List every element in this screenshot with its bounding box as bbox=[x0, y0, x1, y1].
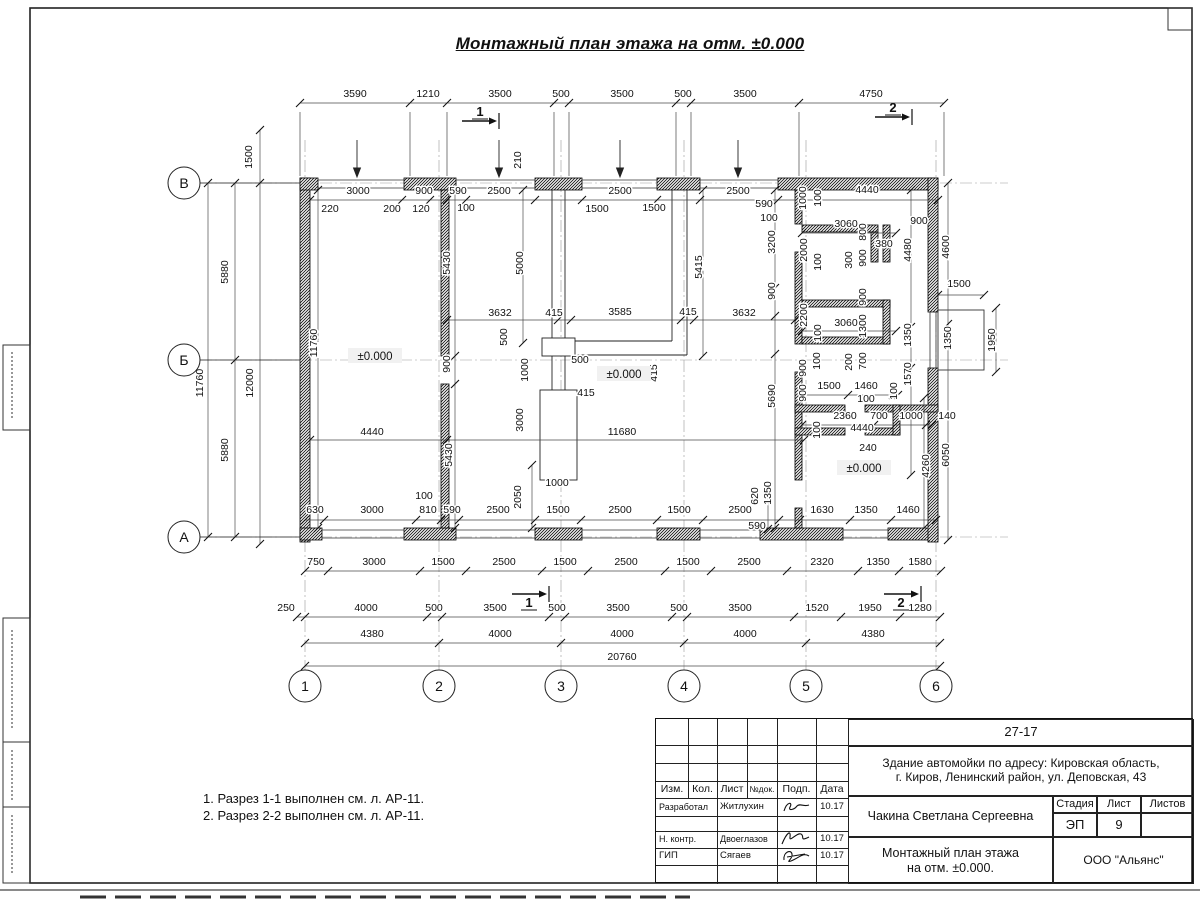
dim-label: 1630 bbox=[810, 504, 834, 516]
dim-label: 100 bbox=[457, 202, 475, 214]
dim-label: 620 bbox=[749, 487, 761, 505]
notes-block: 1. Разрез 1-1 выполнен см. л. АР-11. 2. … bbox=[203, 790, 424, 824]
dim-label: 900 bbox=[415, 185, 433, 197]
leader-arrows bbox=[354, 140, 742, 177]
dim-label: 3200 bbox=[766, 230, 778, 254]
dim-label: 2500 bbox=[486, 504, 510, 516]
dim-label: 900 bbox=[797, 359, 809, 377]
dim-label: 590 bbox=[755, 198, 773, 210]
dim-label: 4380 bbox=[861, 628, 885, 640]
section-number: 2 bbox=[897, 595, 904, 610]
dim-label: 4380 bbox=[360, 628, 384, 640]
dim-label: 810 bbox=[419, 504, 437, 516]
tb-doc-title-line2: на отм. ±0.000. bbox=[907, 861, 994, 875]
dim-label: 3500 bbox=[488, 88, 512, 100]
dim-label: 1350 bbox=[854, 504, 878, 516]
level-mark: ±0.000 bbox=[837, 460, 891, 475]
dim-label: 2200 bbox=[798, 303, 810, 327]
dimension-labels: 3590121035005003500500350047501500210300… bbox=[194, 88, 998, 663]
dim-label: 1950 bbox=[986, 328, 998, 352]
tb-sign-gip bbox=[777, 845, 816, 866]
dim-label: 630 bbox=[306, 504, 324, 516]
dim-label: 2500 bbox=[614, 556, 638, 568]
dim-label: 11760 bbox=[194, 369, 206, 398]
dim-label: 2320 bbox=[810, 556, 834, 568]
dim-label: 500 bbox=[425, 602, 443, 614]
dim-label: 2050 bbox=[512, 485, 524, 509]
dim-label: 100 bbox=[811, 352, 823, 370]
dim-label: 3500 bbox=[606, 602, 630, 614]
dim-label: 900 bbox=[857, 249, 869, 267]
tb-name-ncontrol: Двоеглазов bbox=[717, 831, 777, 848]
title-block: Изм. Кол. Лист №док. Подп. Дата Разработ… bbox=[655, 718, 1193, 883]
dim-label: 5430 bbox=[443, 443, 455, 467]
dim-label: 100 bbox=[888, 382, 900, 400]
dim-label: 1000 bbox=[797, 186, 809, 210]
axis-col-label: 6 bbox=[932, 678, 940, 694]
dim-label: 11760 bbox=[308, 329, 320, 358]
dim-label: 6050 bbox=[940, 443, 952, 467]
tb-name-developer: Житлухин bbox=[717, 798, 777, 816]
dim-label: 1500 bbox=[947, 278, 971, 290]
dim-label: 1580 bbox=[908, 556, 932, 568]
dim-label: 200 bbox=[383, 203, 401, 215]
dim-label: 140 bbox=[938, 410, 956, 422]
dim-label: 1570 bbox=[902, 362, 914, 386]
dim-label: 4440 bbox=[360, 426, 384, 438]
dim-label: 200 bbox=[843, 353, 855, 371]
tb-role-gip: ГИП bbox=[656, 848, 717, 865]
dim-label: 1500 bbox=[667, 504, 691, 516]
dim-label: 100 bbox=[812, 253, 824, 271]
dim-label: 4000 bbox=[610, 628, 634, 640]
dim-label: 4000 bbox=[488, 628, 512, 640]
dim-label: 4260 bbox=[920, 454, 932, 478]
tb-sheet-number: 9 bbox=[1097, 813, 1141, 837]
tb-client: Чакина Светлана Сергеевна bbox=[848, 796, 1053, 837]
axis-col-label: 3 bbox=[557, 678, 565, 694]
dim-label: 1300 bbox=[857, 314, 869, 338]
section-number: 1 bbox=[525, 595, 532, 610]
tb-col-podp: Подп. bbox=[777, 781, 816, 798]
tb-sign-developer bbox=[777, 798, 816, 816]
dim-label: 500 bbox=[552, 88, 570, 100]
dim-label: 590 bbox=[449, 185, 467, 197]
dim-label: 1500 bbox=[431, 556, 455, 568]
dim-label: 3000 bbox=[514, 408, 526, 432]
dim-label: 1500 bbox=[817, 380, 841, 392]
dim-label: 2500 bbox=[737, 556, 761, 568]
dim-label: 1280 bbox=[908, 602, 932, 614]
svg-text:±0.000: ±0.000 bbox=[606, 369, 641, 381]
dim-label: 2500 bbox=[492, 556, 516, 568]
dim-label: 4600 bbox=[940, 235, 952, 259]
dim-label: 900 bbox=[797, 384, 809, 402]
tb-col-kol: Кол. bbox=[688, 781, 717, 798]
dim-label: 5690 bbox=[766, 384, 778, 408]
tb-object: Здание автомойки по адресу: Кировская об… bbox=[848, 746, 1194, 796]
tb-col-list: Лист bbox=[717, 781, 747, 798]
dim-label: 3000 bbox=[346, 185, 370, 197]
margin-stamp-boxes bbox=[3, 345, 30, 883]
dim-label: 1350 bbox=[866, 556, 890, 568]
dim-label: 4440 bbox=[855, 184, 879, 196]
dim-label: 20760 bbox=[607, 651, 636, 663]
dim-label: 3500 bbox=[728, 602, 752, 614]
dim-label: 415 bbox=[577, 387, 595, 399]
axis-col-label: 1 bbox=[301, 678, 309, 694]
dim-label: 500 bbox=[674, 88, 692, 100]
svg-text:±0.000: ±0.000 bbox=[846, 463, 881, 475]
dim-label: 100 bbox=[811, 421, 823, 439]
dim-label: 2500 bbox=[608, 504, 632, 516]
dim-label: 300 bbox=[843, 251, 855, 269]
dim-label: 5880 bbox=[219, 260, 231, 284]
dim-label: 100 bbox=[415, 490, 433, 502]
dim-label: 415 bbox=[545, 307, 563, 319]
dim-label: 2360 bbox=[833, 410, 857, 422]
tb-sheet-label: Лист bbox=[1097, 796, 1141, 813]
dim-label: 100 bbox=[760, 212, 778, 224]
tb-doc-title: Монтажный план этажа на отм. ±0.000. bbox=[848, 837, 1053, 884]
dim-label: 1950 bbox=[858, 602, 882, 614]
level-mark: ±0.000 bbox=[348, 348, 402, 363]
tb-role-ncontrol: Н. контр. bbox=[656, 831, 717, 848]
corner-stamp-box bbox=[1168, 8, 1192, 30]
tb-stage-value: ЭП bbox=[1053, 813, 1097, 837]
tb-stage-label: Стадия bbox=[1053, 796, 1097, 813]
note-line: 1. Разрез 1-1 выполнен см. л. АР-11. bbox=[203, 790, 424, 807]
dim-label: 3500 bbox=[610, 88, 634, 100]
dim-label: 3632 bbox=[488, 307, 512, 319]
tb-doc-title-line1: Монтажный план этажа bbox=[882, 846, 1019, 860]
tb-col-izm: Изм. bbox=[656, 781, 688, 798]
dim-label: 4480 bbox=[902, 238, 914, 262]
dim-label: 1000 bbox=[545, 477, 569, 489]
dim-label: 1500 bbox=[585, 203, 609, 215]
dim-label: 4440 bbox=[850, 422, 874, 434]
svg-text:±0.000: ±0.000 bbox=[357, 351, 392, 363]
dim-label: 1350 bbox=[902, 323, 914, 347]
axis-row-label: В bbox=[179, 175, 188, 191]
dim-label: 120 bbox=[412, 203, 430, 215]
tb-col-ndok: №док. bbox=[747, 781, 777, 798]
dim-label: 900 bbox=[766, 282, 778, 300]
dim-label: 1210 bbox=[416, 88, 440, 100]
signature bbox=[779, 846, 815, 866]
tb-organization: ООО "Альянс" bbox=[1053, 837, 1194, 884]
dim-label: 3500 bbox=[733, 88, 757, 100]
tb-name-gip: Сягаев bbox=[717, 848, 777, 865]
dim-label: 3500 bbox=[483, 602, 507, 614]
dim-label: 2500 bbox=[726, 185, 750, 197]
dim-label: 1500 bbox=[676, 556, 700, 568]
axis-col-label: 4 bbox=[680, 678, 688, 694]
witness-lines bbox=[300, 112, 944, 176]
dim-label: 1500 bbox=[243, 145, 255, 169]
tb-date-gip: 10.17 bbox=[816, 848, 848, 865]
dim-label: 500 bbox=[571, 354, 589, 366]
dim-label: 5000 bbox=[514, 251, 526, 275]
dim-label: 1500 bbox=[553, 556, 577, 568]
dim-label: 100 bbox=[812, 324, 824, 342]
dim-label: 3000 bbox=[360, 504, 384, 516]
tb-object-line2: г. Киров, Ленинский район, ул. Деповская… bbox=[896, 771, 1147, 785]
dim-label: 11680 bbox=[608, 426, 637, 438]
dim-label: 500 bbox=[548, 602, 566, 614]
dim-label: 1460 bbox=[896, 504, 920, 516]
dim-label: 900 bbox=[910, 215, 928, 227]
dim-label: 380 bbox=[875, 238, 893, 250]
dim-label: 3000 bbox=[362, 556, 386, 568]
tb-role-developer: Разработал bbox=[656, 798, 717, 816]
axis-col-label: 5 bbox=[802, 678, 810, 694]
dim-label: 3632 bbox=[732, 307, 756, 319]
dim-label: 5880 bbox=[219, 438, 231, 462]
dim-label: 1520 bbox=[805, 602, 829, 614]
tb-date-ncontrol: 10.17 bbox=[816, 831, 848, 848]
dim-label: 3585 bbox=[608, 306, 632, 318]
dim-label: 4000 bbox=[354, 602, 378, 614]
dim-label: 1000 bbox=[519, 358, 531, 382]
dim-label: 4000 bbox=[733, 628, 757, 640]
dim-label: 100 bbox=[857, 393, 875, 405]
dim-label: 5415 bbox=[693, 255, 705, 279]
dim-label: 3590 bbox=[343, 88, 367, 100]
dim-label: 900 bbox=[857, 288, 869, 306]
dim-label: 4750 bbox=[859, 88, 883, 100]
section-number: 2 bbox=[889, 100, 896, 115]
dim-label: 1500 bbox=[642, 202, 666, 214]
dim-label: 12000 bbox=[244, 368, 256, 397]
tb-col-data: Дата bbox=[816, 781, 848, 798]
dim-label: 700 bbox=[857, 352, 869, 370]
axis-col-label: 2 bbox=[435, 678, 443, 694]
level-mark: ±0.000 bbox=[597, 366, 651, 381]
axis-row-label: Б bbox=[179, 352, 188, 368]
signature bbox=[780, 799, 814, 815]
dim-label: 100 bbox=[812, 189, 824, 207]
tb-project-code: 27-17 bbox=[848, 719, 1194, 746]
dim-label: 250 bbox=[277, 602, 295, 614]
dim-label: 750 bbox=[307, 556, 325, 568]
tb-sheets-label: Листов bbox=[1141, 796, 1194, 813]
dim-label: 240 bbox=[859, 442, 877, 454]
dim-label: 210 bbox=[512, 151, 524, 169]
dim-label: 415 bbox=[679, 306, 697, 318]
dim-label: 590 bbox=[443, 504, 461, 516]
axis-row-label: А bbox=[179, 529, 189, 545]
dim-label: 2500 bbox=[608, 185, 632, 197]
dim-label: 5430 bbox=[441, 251, 453, 275]
dim-label: 2000 bbox=[798, 238, 810, 262]
tb-sheets-value bbox=[1141, 813, 1194, 837]
dim-label: 1350 bbox=[942, 326, 954, 350]
tb-date-developer: 10.17 bbox=[816, 798, 848, 816]
dim-label: 1500 bbox=[546, 504, 570, 516]
dim-label: 3060 bbox=[834, 218, 858, 230]
dim-label: 900 bbox=[441, 355, 453, 373]
dim-label: 500 bbox=[498, 328, 510, 346]
dim-label: 2500 bbox=[487, 185, 511, 197]
dim-label: 1350 bbox=[762, 481, 774, 505]
sheet-title: Монтажный план этажа на отм. ±0.000 bbox=[390, 34, 870, 54]
dim-label: 1460 bbox=[854, 380, 878, 392]
tb-object-line1: Здание автомойки по адресу: Кировская об… bbox=[882, 757, 1159, 771]
dim-label: 2500 bbox=[728, 504, 752, 516]
dim-label: 220 bbox=[321, 203, 339, 215]
dim-label: 590 bbox=[748, 520, 766, 532]
note-line: 2. Разрез 2-2 выполнен см. л. АР-11. bbox=[203, 807, 424, 824]
section-number: 1 bbox=[476, 104, 483, 119]
dim-label: 500 bbox=[670, 602, 688, 614]
dim-label: 1000 bbox=[899, 410, 923, 422]
drawing-sheet: { "sheet": { "title": "Монтажный план эт… bbox=[0, 0, 1200, 900]
dim-label: 800 bbox=[857, 223, 869, 241]
dim-label: 3060 bbox=[834, 317, 858, 329]
dim-label: 700 bbox=[870, 410, 888, 422]
